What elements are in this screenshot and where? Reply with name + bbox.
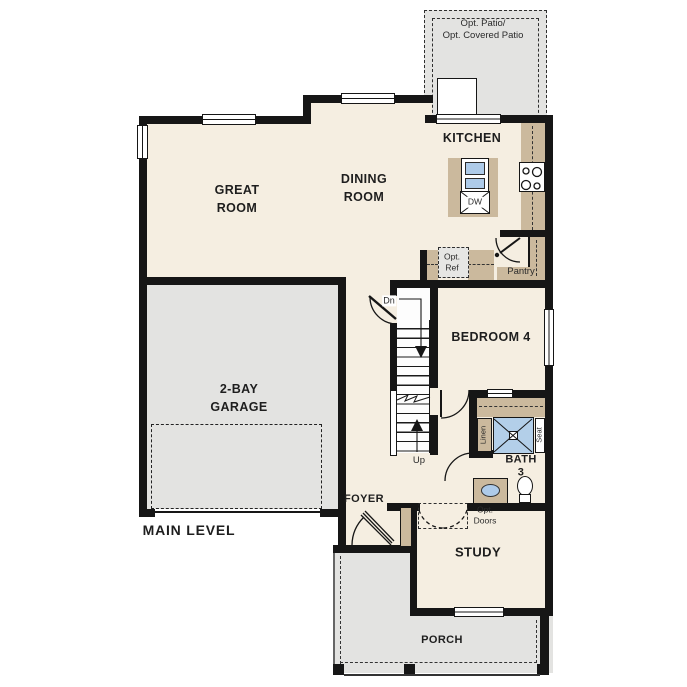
sink-basin-top [465, 162, 485, 175]
counter-left-of-ref [427, 250, 438, 280]
toilet-base [519, 494, 531, 503]
wall-stairs-top [390, 280, 553, 288]
study-window [454, 607, 504, 617]
closet-rod-dash [479, 406, 543, 407]
toilet-bowl [517, 476, 533, 496]
wall-stairs-right [430, 288, 438, 388]
stair-railing [390, 390, 397, 456]
wall-porch-right [540, 613, 549, 675]
wall-garage-bottom-left [139, 509, 155, 517]
porch-floor-left [333, 550, 410, 673]
garage-door-line [155, 511, 320, 513]
dishwasher-label: DW [467, 197, 483, 208]
counter-dash-b [468, 264, 494, 265]
foyer-wall-strip [400, 507, 412, 547]
dining-room-label: DINING ROOM [341, 170, 387, 206]
porch-dash-left [340, 556, 341, 664]
stair-up-label: Up [413, 455, 425, 467]
wall-pantry-top [500, 230, 553, 237]
opt-doors-label: Opt. Doors [474, 504, 497, 525]
closet-slider-door [487, 389, 513, 398]
wall-left-lower [139, 282, 147, 517]
great-room-label: GREAT ROOM [215, 181, 260, 217]
study-label: STUDY [455, 544, 501, 563]
bath3-label: BATH 3 [505, 453, 536, 478]
stair-treads [397, 320, 430, 453]
seat-label: Seat [535, 427, 546, 442]
counter-right-of-ref [468, 250, 494, 280]
sink-basin-bottom [465, 178, 485, 189]
kitchen-label: KITCHEN [443, 129, 501, 147]
optional-doors-opening [418, 503, 468, 529]
opt-patio-label: Opt. Patio/ Opt. Covered Patio [443, 18, 524, 42]
shower-drain [509, 431, 518, 440]
pantry-cabinet-dash [536, 240, 537, 276]
garage-door-zone [151, 424, 322, 509]
opt-ref-label: Opt. Ref [444, 251, 460, 272]
wall-stairs-right-lower [430, 415, 438, 455]
counter-dash-a [427, 264, 438, 265]
garage-label: 2-BAY GARAGE [210, 380, 267, 416]
porch-label: PORCH [421, 633, 463, 649]
pantry-label: Pantry [507, 266, 534, 278]
cooktop [519, 162, 545, 192]
porch-step-edge [344, 674, 540, 676]
greatroom-top-window [202, 114, 256, 125]
wall-counter-stub [420, 250, 427, 280]
kitchen-slider-door [436, 114, 501, 124]
wall-hall-left [469, 390, 477, 458]
stair-down-label: Dn [382, 295, 396, 306]
foyer-label: FOYER [344, 492, 384, 508]
vanity-sink [481, 484, 500, 497]
linen-label: Linen [479, 426, 490, 444]
main-level-label: MAIN LEVEL [143, 520, 236, 540]
wall-garage-top [139, 277, 346, 285]
stair-landing [397, 288, 430, 320]
patio-fireplace-box [437, 78, 477, 117]
floor-plan: Opt. Patio/ Opt. Covered Patio KITCHEN G… [0, 0, 687, 687]
bedroom4-closet-shelf [477, 398, 545, 417]
porch-dash-bottom [340, 662, 537, 663]
dining-top-window [341, 93, 395, 104]
wall-pantry-divider [528, 237, 530, 267]
bedroom4-label: BEDROOM 4 [451, 328, 530, 346]
wall-stairs-left-b [390, 323, 397, 390]
wall-garage-bottom-right [320, 509, 346, 517]
porch-dash-right [536, 620, 537, 663]
dining-room-floor [307, 103, 432, 133]
greatroom-left-window [137, 125, 148, 159]
porch-post-left [333, 664, 344, 675]
bedroom4-window [544, 309, 554, 366]
great-room-floor [147, 124, 430, 285]
